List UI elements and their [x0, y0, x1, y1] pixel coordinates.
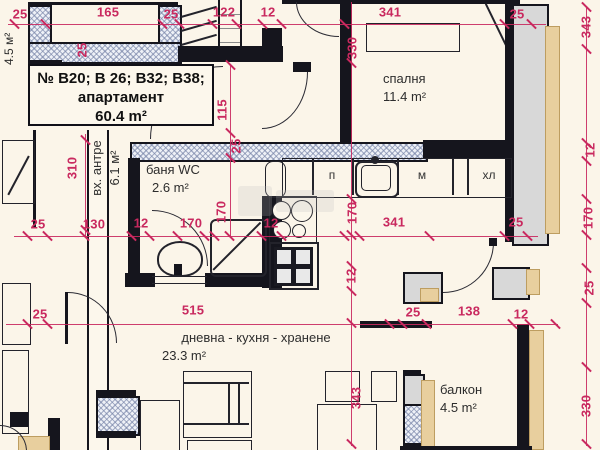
dimension-label: 515	[182, 303, 204, 318]
dimension-label: 343	[349, 387, 364, 409]
counter-divider	[452, 159, 454, 195]
bedroom-name: спалня	[383, 70, 426, 88]
armchair-line	[228, 383, 230, 423]
armchair-line	[238, 383, 240, 423]
dining-table	[317, 404, 377, 450]
dimension-label: 115	[215, 99, 230, 121]
door-threshold	[152, 283, 207, 284]
door-hinge	[489, 238, 497, 246]
room-label-balcony: балкон 4.5 m²	[440, 381, 482, 416]
dimension-line	[8, 24, 546, 25]
insulation-strip	[529, 330, 544, 450]
living-area: 23.3 m²	[120, 347, 392, 365]
dimension-label: 25	[31, 217, 46, 232]
kitchen-sink-basin-inner	[361, 165, 391, 191]
stair-step-line	[181, 34, 217, 46]
wall-segment	[96, 431, 136, 438]
living-name: дневна - кухня - хранене	[120, 329, 392, 347]
dimension-label: 25	[582, 281, 597, 296]
dimension-label: 12	[583, 143, 598, 158]
dimension-label: 170	[180, 216, 202, 231]
bathroom-area: 2.6 m²	[146, 179, 200, 197]
apartment-label: апартамент	[30, 89, 212, 108]
dimension-label: 12	[264, 216, 279, 231]
dimension-line	[14, 236, 538, 237]
dimension-label: 330	[345, 37, 360, 59]
dimension-label: 341	[379, 5, 401, 20]
bathroom-name: баня WC	[146, 161, 200, 179]
sofa	[140, 400, 180, 450]
armchair-line	[184, 423, 249, 425]
neighbor-balcony-area: 4.5 м²	[1, 15, 17, 65]
hatched-wall	[96, 396, 140, 436]
stair-step-line	[220, 28, 240, 29]
insulation-strip	[421, 380, 435, 448]
room-label-bathroom: баня WC 2.6 m²	[146, 161, 200, 196]
wall-segment	[517, 324, 529, 450]
dimension-label: 12	[134, 216, 149, 231]
side-table	[187, 440, 252, 450]
concrete-wall	[512, 4, 549, 246]
dimension-label: 130	[83, 217, 105, 232]
toilet-tank	[174, 264, 182, 275]
bedroom-area: 11.4 m²	[383, 88, 426, 106]
insulation-strip	[526, 269, 540, 295]
dimension-label: 165	[97, 5, 119, 20]
wall-segment	[400, 446, 532, 450]
dimension-label: 25	[33, 307, 48, 322]
door-arc	[443, 242, 494, 293]
counter-divider	[352, 159, 354, 195]
fridge-label: хл	[477, 168, 501, 182]
dimension-label: 343	[579, 16, 594, 38]
washer-label: п	[322, 168, 342, 182]
dimension-label: 138	[458, 304, 480, 319]
info-box: № В20; В 26; В32; В38; апартамент 60.4 m…	[28, 64, 214, 126]
apartment-numbers: № В20; В 26; В32; В38;	[30, 70, 212, 89]
wall-segment	[262, 28, 282, 48]
dimension-line	[6, 324, 558, 325]
watermark	[276, 190, 334, 212]
neighbor-furniture	[2, 283, 31, 345]
dimension-label: 12	[514, 307, 529, 322]
dimension-label: 170	[214, 201, 229, 223]
dimension-label: 12	[344, 269, 359, 284]
door-arc	[262, 72, 308, 129]
dimension-label: 330	[579, 395, 594, 417]
door-leaf	[65, 292, 68, 344]
room-label-neighbor-balcony: 4.5 м²	[1, 15, 17, 65]
dimension-label: 25	[406, 305, 421, 320]
dimension-label: 25	[75, 43, 90, 58]
burner	[293, 266, 313, 286]
room-label-living: дневна - кухня - хранене 23.3 m²	[120, 329, 392, 364]
entry-area: 6.1 м²	[106, 120, 124, 216]
room-label-bedroom: спалня 11.4 m²	[383, 70, 426, 105]
dimension-label: 122	[213, 5, 235, 20]
entry-name: вх. антре	[88, 120, 106, 216]
wall-segment	[178, 46, 283, 62]
watermark	[238, 186, 272, 216]
balcony-name: балкон	[440, 381, 482, 399]
dimension-label: 25	[164, 7, 179, 22]
stair-step-line	[181, 6, 217, 18]
door-jamb	[293, 62, 311, 72]
wall-segment	[423, 140, 511, 158]
balcony-area: 4.5 m²	[440, 399, 482, 417]
wall-segment	[125, 273, 155, 287]
burner	[293, 247, 313, 267]
floor-plan: п м хл 251652512212341253303431217025330…	[0, 0, 600, 450]
burner	[274, 266, 294, 286]
dimension-label: 12	[261, 5, 276, 20]
counter-divider	[467, 159, 469, 195]
dimension-label: 341	[383, 215, 405, 230]
dimension-label: 310	[65, 157, 80, 179]
wall-segment	[10, 412, 28, 427]
dishwasher-label: м	[412, 168, 432, 182]
dimension-label: 170	[345, 202, 360, 224]
chair	[371, 371, 397, 402]
wardrobe	[366, 23, 460, 52]
insulation-strip	[545, 26, 560, 234]
concrete-column	[492, 267, 530, 300]
dimension-label: 25	[510, 7, 525, 22]
dimension-label: 25	[229, 139, 244, 154]
dimension-label: 25	[509, 215, 524, 230]
wall-segment	[505, 4, 512, 242]
shower	[210, 219, 267, 277]
insulation-strip	[420, 288, 439, 302]
stair-step-line	[220, 42, 240, 43]
burner	[274, 247, 294, 267]
faucet-dot	[371, 156, 379, 164]
room-label-entry: вх. антре 6.1 м²	[88, 120, 128, 216]
door-arc	[296, 2, 339, 37]
door-arc	[68, 292, 117, 343]
dimension-label: 170	[581, 207, 596, 229]
